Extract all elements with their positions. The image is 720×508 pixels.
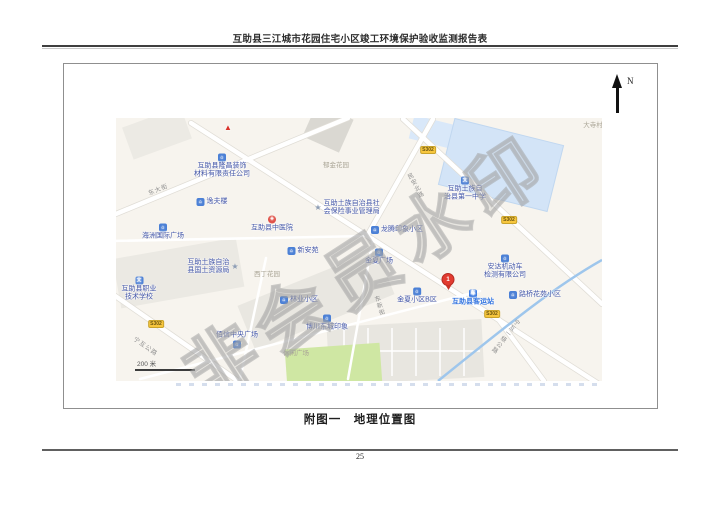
map-poi-text: 安达机动车检测有限公司 bbox=[484, 264, 526, 280]
map-poi: ⌂博川东城印象 bbox=[306, 315, 348, 332]
north-arrow-stem bbox=[616, 87, 619, 113]
map-poi-line: 互助县客运站 bbox=[452, 299, 494, 307]
map-poi-line: 互助县隆昌装饰 bbox=[194, 163, 250, 171]
building-icon: ⌂ bbox=[218, 154, 226, 162]
map: 非会员水印 ▲⌂互助县隆昌装饰材料有限责任公司⌂逸夫楼+互助县中医院⌂海洲国际广… bbox=[116, 118, 602, 381]
map-poi: ⌂互助县隆昌装饰材料有限责任公司 bbox=[194, 154, 250, 179]
map-poi-text: 金夏小区B区 bbox=[397, 297, 437, 305]
building-icon: ⌂ bbox=[371, 226, 379, 234]
map-poi: 互助土族自治县国土资源局★ bbox=[187, 259, 238, 275]
map-poi: 文互助县职业技术学校 bbox=[122, 277, 157, 302]
map-poi-line: 互助土族自 bbox=[444, 186, 486, 194]
map-poi-text: 逸夫楼 bbox=[207, 198, 228, 206]
building-icon: ⌂ bbox=[413, 288, 421, 296]
map-poi-line: 互助县中医院 bbox=[251, 225, 293, 233]
building-icon: ⌂ bbox=[288, 247, 296, 255]
school-icon: 文 bbox=[135, 277, 143, 285]
map-poi-line: 材料有限责任公司 bbox=[194, 171, 250, 179]
map-poi-line: 佰信中央广场 bbox=[216, 332, 258, 340]
map-poi-text: 互助县客运站 bbox=[452, 299, 494, 307]
map-poi-line: 博川东城印象 bbox=[306, 324, 348, 332]
map-poi-text: 龙腾印象小区 bbox=[381, 226, 423, 234]
government-star-icon: ★ bbox=[231, 263, 238, 271]
map-poi-line: 治县第一中学 bbox=[444, 194, 486, 202]
map-poi-text: 互助县中医院 bbox=[251, 225, 293, 233]
map-scale-bar: 200 米 bbox=[135, 358, 195, 371]
map-poi-line: 互助县职业 bbox=[122, 286, 157, 294]
figure-box: N bbox=[63, 63, 658, 409]
building-icon: ⌂ bbox=[501, 255, 509, 263]
bus-station-icon: 车 bbox=[469, 290, 477, 298]
map-poi: ⌂安达机动车检测有限公司 bbox=[484, 255, 526, 280]
header-rule bbox=[42, 45, 678, 47]
map-poi: 车互助县客运站 bbox=[452, 290, 494, 307]
map-poi-line: 县国土资源局 bbox=[187, 267, 229, 275]
map-poi: ▲ bbox=[224, 124, 232, 132]
road-badge: S302 bbox=[148, 320, 164, 328]
map-edge-artifact bbox=[176, 383, 600, 386]
map-poi-text: 新安苑 bbox=[298, 247, 319, 255]
map-area-label: 休闲广场 bbox=[283, 347, 309, 357]
map-poi: ⌂林业小区 bbox=[280, 296, 318, 304]
map-poi-line: 技术学校 bbox=[122, 294, 157, 302]
school-icon: 文 bbox=[461, 177, 469, 185]
map-poi: ⌂龙腾印象小区 bbox=[371, 226, 423, 234]
building-icon: ⌂ bbox=[375, 249, 383, 257]
map-poi-line: 金夏小区B区 bbox=[397, 297, 437, 305]
map-poi-text: 互助土族自治县第一中学 bbox=[444, 186, 486, 202]
scale-label: 200 米 bbox=[137, 358, 195, 368]
map-poi-line: 逸夫楼 bbox=[207, 198, 228, 206]
map-graphics bbox=[116, 118, 602, 381]
location-pin-icon: 1 bbox=[442, 273, 455, 290]
map-poi-text: 林业小区 bbox=[290, 296, 318, 304]
map-poi: 文互助土族自治县第一中学 bbox=[444, 177, 486, 202]
map-area-label: 大寺村 bbox=[583, 119, 602, 129]
map-poi-line: 路桥花苑小区 bbox=[519, 291, 561, 299]
map-poi: ⌂海洲国际广场 bbox=[142, 224, 184, 241]
compass-north-label: N bbox=[627, 76, 634, 86]
map-poi-text: 互助县隆昌装饰材料有限责任公司 bbox=[194, 163, 250, 179]
map-poi-text: 路桥花苑小区 bbox=[519, 291, 561, 299]
road-badge: S302 bbox=[484, 310, 500, 318]
building-icon: ⌂ bbox=[197, 198, 205, 206]
map-poi-text: 博川东城印象 bbox=[306, 324, 348, 332]
map-poi-line: 林业小区 bbox=[290, 296, 318, 304]
map-poi: ⌂新安苑 bbox=[288, 247, 319, 255]
government-star-icon: ★ bbox=[314, 204, 321, 212]
map-poi-line: 安达机动车 bbox=[484, 264, 526, 272]
page-number: 25 bbox=[0, 452, 720, 461]
map-poi-line: 海洲国际广场 bbox=[142, 233, 184, 241]
map-poi-text: 互助县职业技术学校 bbox=[122, 286, 157, 302]
map-poi-text: 互助土族自治县社会保险事业管理局 bbox=[324, 200, 380, 216]
header-title: 互助县三江城市花园住宅小区竣工环境保护验收监测报告表 bbox=[0, 31, 720, 45]
map-poi: 佰信中央广场⌂ bbox=[216, 332, 258, 349]
map-poi-line: 新安苑 bbox=[298, 247, 319, 255]
map-poi: ⌂路桥花苑小区 bbox=[509, 291, 561, 299]
map-poi: ★互助土族自治县社会保险事业管理局 bbox=[314, 200, 379, 216]
map-poi: ⌂金夏小区B区 bbox=[397, 288, 437, 305]
map-poi-line: 会保险事业管理局 bbox=[324, 208, 380, 216]
scale-line bbox=[135, 369, 195, 371]
map-area-label: 西丁花园 bbox=[254, 268, 280, 278]
header-rule-thin bbox=[42, 48, 678, 49]
footer-rule bbox=[42, 449, 678, 451]
building-icon: ⌂ bbox=[323, 315, 331, 323]
map-poi: ⌂逸夫楼 bbox=[197, 198, 228, 206]
building-icon: ⌂ bbox=[159, 224, 167, 232]
road-badge: S302 bbox=[420, 146, 436, 154]
figure-caption: 附图一 地理位置图 bbox=[0, 411, 720, 427]
building-icon: ⌂ bbox=[280, 296, 288, 304]
map-poi: +互助县中医院 bbox=[251, 216, 293, 233]
map-poi-text: 金夏广场 bbox=[365, 258, 393, 266]
hospital-icon: + bbox=[268, 216, 276, 224]
map-poi-text: 佰信中央广场 bbox=[216, 332, 258, 340]
compass: N bbox=[610, 74, 644, 118]
map-area-label: 郁金花园 bbox=[323, 159, 349, 169]
map-poi-text: 海洲国际广场 bbox=[142, 233, 184, 241]
road-badge: S302 bbox=[501, 216, 517, 224]
building-icon: ⌂ bbox=[233, 341, 241, 349]
pin-tail bbox=[445, 285, 451, 290]
map-poi-line: 检测有限公司 bbox=[484, 272, 526, 280]
landmark-triangle-icon: ▲ bbox=[224, 124, 232, 132]
map-poi-text: 互助土族自治县国土资源局 bbox=[187, 259, 229, 275]
map-poi-line: 互助土族自治县社 bbox=[324, 200, 380, 208]
document-page: 互助县三江城市花园住宅小区竣工环境保护验收监测报告表 N bbox=[0, 0, 720, 508]
building-icon: ⌂ bbox=[509, 291, 517, 299]
map-poi: ⌂金夏广场 bbox=[365, 249, 393, 266]
map-poi-line: 金夏广场 bbox=[365, 258, 393, 266]
north-arrow-icon bbox=[612, 74, 622, 88]
map-poi-line: 龙腾印象小区 bbox=[381, 226, 423, 234]
map-poi-line: 互助土族自治 bbox=[187, 259, 229, 267]
